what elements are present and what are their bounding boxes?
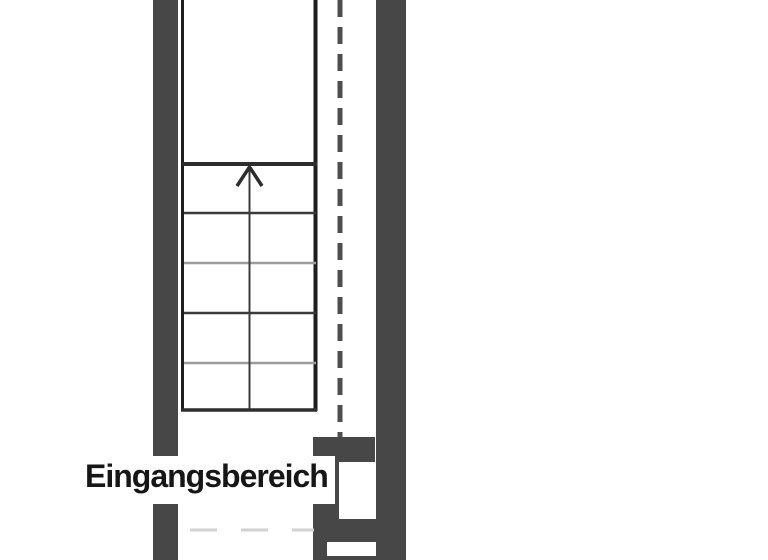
entrance-area-label: Eingangsbereich — [78, 456, 335, 504]
wall-stub — [313, 542, 327, 560]
floor-plan: Eingangsbereich — [0, 0, 768, 560]
stair-up-arrow-icon — [237, 167, 262, 186]
right-wall — [376, 0, 406, 560]
cross-wall-lower — [313, 519, 382, 542]
threshold-line — [327, 556, 378, 560]
